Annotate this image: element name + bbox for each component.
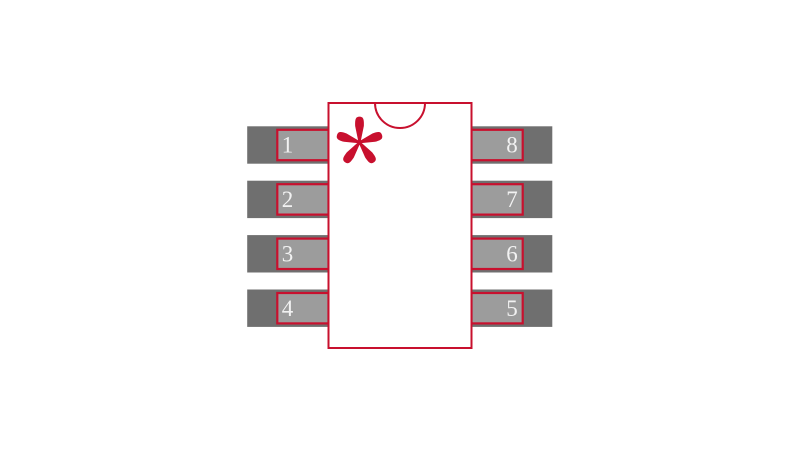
svg-text:7: 7	[506, 187, 518, 212]
svg-text:2: 2	[282, 187, 294, 212]
svg-text:5: 5	[506, 296, 518, 321]
svg-text:8: 8	[506, 133, 518, 158]
svg-text:1: 1	[282, 133, 294, 158]
svg-text:6: 6	[506, 241, 518, 266]
svg-text:4: 4	[282, 296, 294, 321]
svg-text:3: 3	[282, 241, 294, 266]
